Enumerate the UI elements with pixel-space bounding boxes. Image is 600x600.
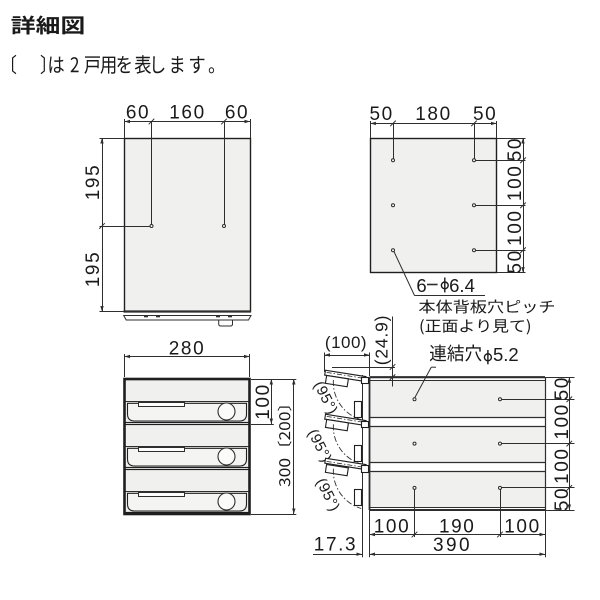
svg-text:50: 50: [473, 104, 497, 125]
svg-text:6: 6: [416, 275, 426, 296]
svg-text:50: 50: [552, 487, 573, 511]
svg-text:195: 195: [83, 164, 104, 201]
svg-text:100: 100: [552, 447, 573, 484]
svg-text:50: 50: [552, 376, 573, 400]
svg-text:195: 195: [83, 251, 104, 288]
svg-text:100: 100: [505, 209, 526, 246]
svg-text:160: 160: [169, 102, 206, 123]
svg-text:60: 60: [225, 102, 249, 123]
svg-text:50: 50: [505, 137, 526, 161]
svg-text:100: 100: [253, 383, 274, 420]
svg-text:(24.9): (24.9): [372, 315, 392, 366]
svg-text:50: 50: [370, 104, 394, 125]
svg-text:5.2: 5.2: [493, 344, 519, 365]
svg-text:100: 100: [374, 516, 411, 537]
svg-text:100: 100: [552, 403, 573, 440]
svg-text:6.4: 6.4: [449, 275, 475, 296]
svg-text:100: 100: [504, 516, 541, 537]
svg-text:390: 390: [433, 535, 472, 556]
svg-text:100: 100: [505, 165, 526, 202]
svg-text:180: 180: [415, 104, 452, 125]
svg-text:280: 280: [169, 339, 206, 360]
svg-text:17.3: 17.3: [314, 535, 357, 556]
svg-text:50: 50: [505, 249, 526, 273]
svg-text:(100): (100): [325, 333, 367, 352]
svg-text:60: 60: [126, 102, 150, 123]
